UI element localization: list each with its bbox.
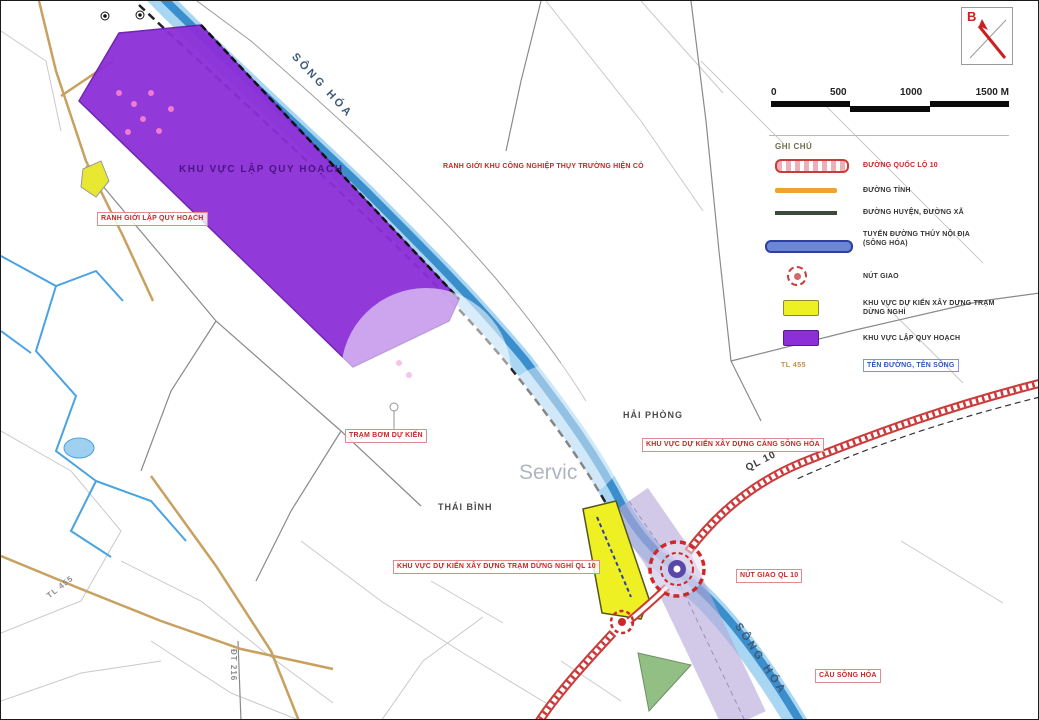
scale-tick-500: 500 — [830, 87, 847, 98]
annotation-river-port: KHU VỰC DỰ KIẾN XÂY DỰNG CẢNG SÔNG HÓA — [642, 438, 824, 452]
name-sample-symbol: TL 455 — [781, 362, 806, 369]
planning-zone-symbol — [783, 330, 819, 346]
proposed-area-symbol — [783, 300, 819, 316]
north-arrow: B — [961, 7, 1013, 65]
legend-item-name-sample: TL 455 TÊN ĐƯỜNG, TÊN SÔNG — [775, 359, 1027, 372]
legend-divider — [769, 135, 1009, 136]
scale-bar-segments — [771, 101, 1009, 113]
roundabout — [650, 542, 704, 596]
annotation-bridge: CẦU SÔNG HÓA — [815, 669, 881, 683]
building-symbols — [101, 11, 144, 20]
annotation-junction: NÚT GIAO QL 10 — [736, 569, 802, 583]
annotation-rest-stop: KHU VỰC DỰ KIẾN XÂY DỰNG TRẠM DỪNG NGHỈ … — [393, 560, 600, 574]
scale-tick-1500: 1500 M — [976, 87, 1009, 98]
legend-label: ĐƯỜNG QUỐC LỘ 10 — [863, 161, 938, 170]
legend-title: GHI CHÚ — [775, 142, 1027, 151]
legend-label: KHU VỰC DỰ KIẾN XÂY DỰNG TRẠM DỪNG NGHỈ — [863, 299, 1013, 317]
north-label: B — [967, 9, 976, 24]
legend-item-planning-zone: KHU VỰC LẬP QUY HOẠCH — [775, 330, 1027, 346]
yellow-area-small — [81, 161, 109, 197]
district-road-symbol — [775, 211, 837, 215]
scale-tick-1000: 1000 — [900, 87, 922, 98]
planning-map[interactable]: m Servic SÔNG HÓA SÔNG HÓA QL 10 HẢI PHÒ… — [0, 0, 1039, 720]
legend-label: ĐƯỜNG TỈNH — [863, 186, 911, 195]
pond — [64, 438, 94, 458]
legend-label: TÊN ĐƯỜNG, TÊN SÔNG — [863, 359, 959, 372]
annotation-industrial-boundary: RANH GIỚI KHU CÔNG NGHIỆP THỤY TRƯỜNG HI… — [439, 160, 648, 174]
annotation-planning-boundary: RANH GIỚI LẬP QUY HOẠCH — [97, 212, 208, 226]
scale-bar: 0 500 1000 1500 M — [771, 87, 1009, 113]
legend-item-national-road: ĐƯỜNG QUỐC LỘ 10 — [775, 159, 1027, 173]
legend-label: NÚT GIAO — [863, 272, 899, 281]
canals — [1, 256, 186, 557]
junction-symbol — [787, 266, 807, 286]
legend: GHI CHÚ ĐƯỜNG QUỐC LỘ 10 ĐƯỜNG TỈNH ĐƯỜN… — [769, 135, 1027, 385]
legend-item-waterway: TUYẾN ĐƯỜNG THỦY NỘI ĐỊA (SÔNG HÓA) — [775, 230, 1027, 253]
legend-item-province-road: ĐƯỜNG TỈNH — [775, 186, 1027, 195]
legend-label: KHU VỰC LẬP QUY HOẠCH — [863, 334, 960, 343]
province-road-symbol — [775, 188, 837, 193]
legend-item-district-road: ĐƯỜNG HUYỆN, ĐƯỜNG XÃ — [775, 208, 1027, 217]
waterway-symbol — [765, 240, 853, 253]
legend-item-proposed-area: KHU VỰC DỰ KIẾN XÂY DỰNG TRẠM DỪNG NGHỈ — [775, 299, 1027, 317]
scale-tick-0: 0 — [771, 87, 777, 98]
green-parcel — [638, 653, 691, 711]
annotation-pump-station: TRẠM BƠM DỰ KIẾN — [345, 429, 427, 443]
legend-item-junction: NÚT GIAO — [775, 266, 1027, 286]
legend-label: ĐƯỜNG HUYỆN, ĐƯỜNG XÃ — [863, 208, 964, 217]
national-road-symbol — [775, 159, 849, 173]
legend-label: TUYẾN ĐƯỜNG THỦY NỘI ĐỊA (SÔNG HÓA) — [863, 230, 970, 248]
